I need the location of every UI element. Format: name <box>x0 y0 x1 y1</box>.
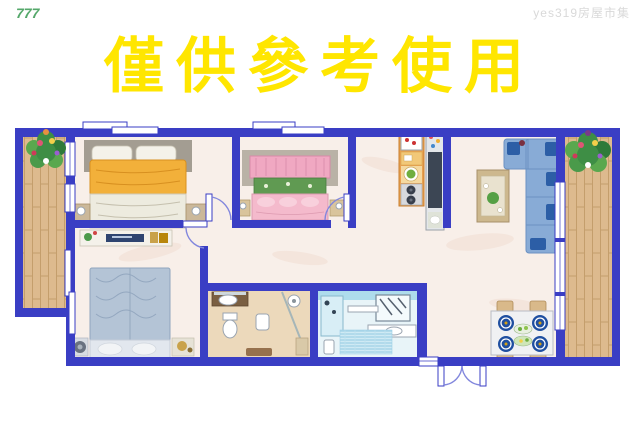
entry-double-door <box>438 366 486 386</box>
right-balcony <box>564 137 612 357</box>
bedroom-2 <box>236 150 348 220</box>
bedroom-1 <box>72 140 206 228</box>
floorplan <box>0 0 640 436</box>
coffee-table-icon <box>477 170 509 222</box>
tile-mat-icon <box>340 330 392 354</box>
bathroom-1 <box>208 291 310 357</box>
mirror-icon <box>376 295 410 321</box>
bathroom-2 <box>318 291 417 357</box>
bath-mat-icon <box>246 348 272 356</box>
